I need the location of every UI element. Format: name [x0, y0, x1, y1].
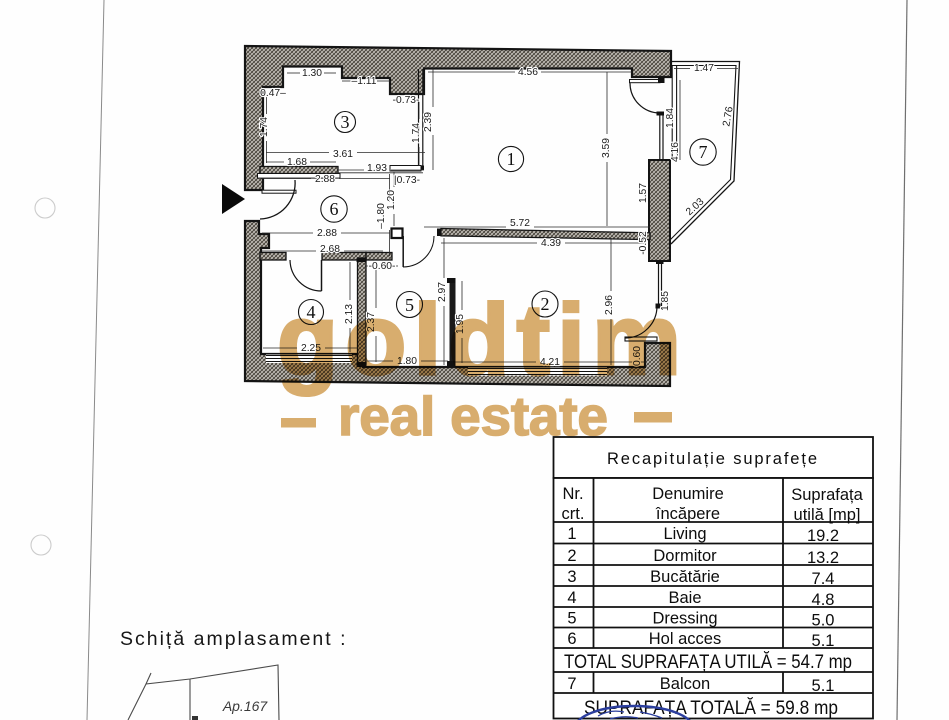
svg-text:2.68: 2.68	[320, 244, 340, 255]
svg-text:Recapitulație suprafețe: Recapitulație suprafețe	[607, 450, 817, 468]
svg-text:2.88: 2.88	[315, 174, 335, 185]
svg-text:1.84: 1.84	[665, 108, 676, 128]
svg-text:5.1: 5.1	[812, 632, 835, 650]
svg-text:1.74: 1.74	[259, 117, 270, 137]
svg-text:1.93: 1.93	[367, 163, 387, 174]
svg-text:Nr.: Nr.	[562, 485, 583, 503]
svg-text:Living: Living	[663, 525, 706, 543]
svg-text:1.74: 1.74	[411, 123, 422, 143]
svg-text:1.20: 1.20	[386, 190, 397, 210]
svg-text:5.1: 5.1	[812, 677, 835, 695]
svg-text:4: 4	[567, 589, 576, 607]
svg-text:–1.80: –1.80	[376, 203, 387, 229]
svg-text:7: 7	[567, 675, 576, 693]
svg-text:4.56: 4.56	[518, 67, 538, 78]
svg-text:Baie: Baie	[668, 589, 701, 607]
svg-text:Dormitor: Dormitor	[653, 547, 717, 565]
svg-text:19.2: 19.2	[807, 527, 839, 545]
svg-text:1.68: 1.68	[287, 157, 307, 168]
svg-text:6: 6	[330, 199, 339, 219]
svg-text:Schiță amplasament :: Schiță amplasament :	[120, 628, 348, 650]
svg-text:–1.11: –1.11	[351, 76, 376, 87]
svg-text:Dressing: Dressing	[652, 610, 717, 628]
svg-text:7.4: 7.4	[812, 570, 835, 588]
svg-text:1.47: 1.47	[694, 63, 714, 74]
svg-text:3.61: 3.61	[333, 149, 353, 160]
svg-text:crt.: crt.	[562, 505, 585, 523]
svg-text:TOTAL SUPRAFAȚA UTILĂ = 54.7 m: TOTAL SUPRAFAȚA UTILĂ = 54.7 mp	[564, 650, 852, 673]
svg-text:1: 1	[567, 525, 576, 543]
svg-text:1: 1	[507, 149, 516, 169]
svg-text:încăpere: încăpere	[655, 505, 720, 523]
svg-text:1.30: 1.30	[302, 68, 322, 79]
svg-text:3.59: 3.59	[601, 138, 612, 158]
svg-text:5.0: 5.0	[812, 612, 835, 630]
svg-text:-0.52: -0.52	[638, 231, 649, 255]
svg-text:Suprafața: Suprafața	[791, 486, 863, 504]
svg-text:Bucătărie: Bucătărie	[650, 568, 720, 586]
svg-text:0.47–: 0.47–	[260, 88, 286, 99]
svg-text:2.39: 2.39	[423, 112, 434, 132]
svg-text:goldtim: goldtim	[277, 284, 681, 396]
svg-text:7: 7	[699, 142, 708, 162]
svg-text:5: 5	[567, 610, 576, 628]
svg-text:3: 3	[341, 112, 350, 132]
svg-text:2.88: 2.88	[317, 228, 337, 239]
svg-text:|0.73-: |0.73-	[394, 175, 420, 186]
svg-text:Ap.167: Ap.167	[222, 698, 269, 714]
svg-text:Hol acces: Hol acces	[649, 630, 721, 648]
svg-text:4.16: 4.16	[670, 142, 681, 162]
svg-text:4.8: 4.8	[812, 591, 835, 609]
svg-text:5.72: 5.72	[510, 218, 530, 229]
svg-text:utilă [mp]: utilă [mp]	[794, 506, 861, 524]
svg-text:-0.60-: -0.60-	[369, 261, 396, 272]
svg-text:-0.73-: -0.73-	[393, 95, 420, 106]
svg-text:3: 3	[567, 568, 576, 586]
svg-text:1.57: 1.57	[638, 183, 649, 203]
svg-text:6: 6	[567, 630, 576, 648]
svg-text:4.39: 4.39	[541, 238, 561, 249]
svg-text:13.2: 13.2	[807, 549, 839, 567]
svg-text:Denumire: Denumire	[652, 485, 724, 503]
svg-text:Balcon: Balcon	[660, 675, 710, 693]
svg-text:2: 2	[567, 547, 576, 565]
